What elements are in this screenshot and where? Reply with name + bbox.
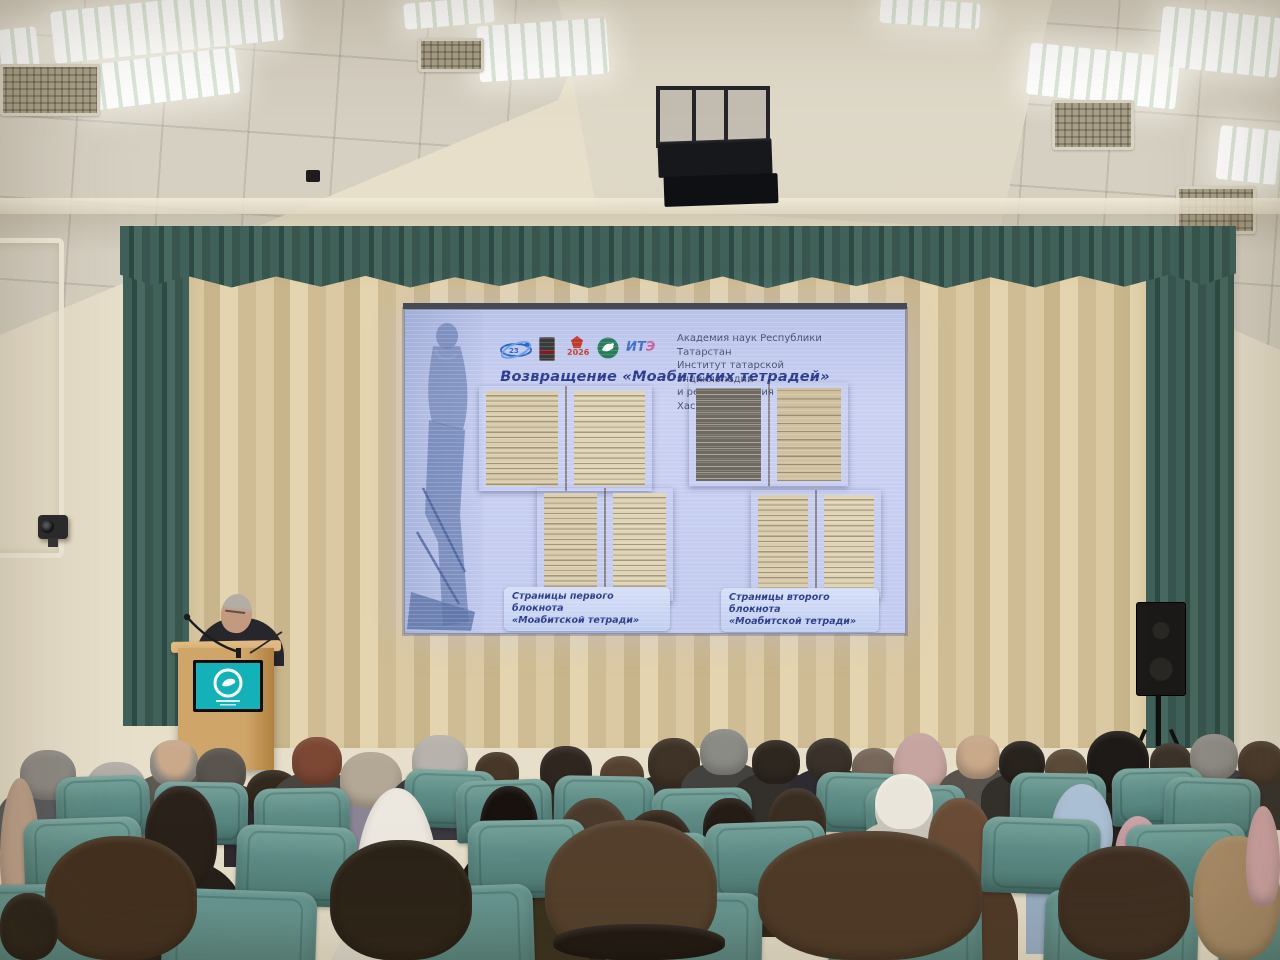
audience-head	[553, 924, 725, 960]
audience-head	[1058, 846, 1190, 960]
audience-head	[330, 840, 472, 960]
audience-head	[45, 836, 197, 960]
audience-head	[292, 737, 342, 785]
audience-head	[752, 740, 800, 784]
audience-head	[956, 735, 1000, 779]
audience-head	[758, 831, 982, 960]
audience-head	[0, 893, 58, 960]
audience-head	[150, 740, 198, 786]
audience-head	[700, 729, 748, 775]
auditorium-photo: 23 2026 ИТЭ Академия наук Республики	[0, 0, 1280, 960]
audience	[0, 0, 1280, 960]
audience-head	[875, 774, 933, 838]
